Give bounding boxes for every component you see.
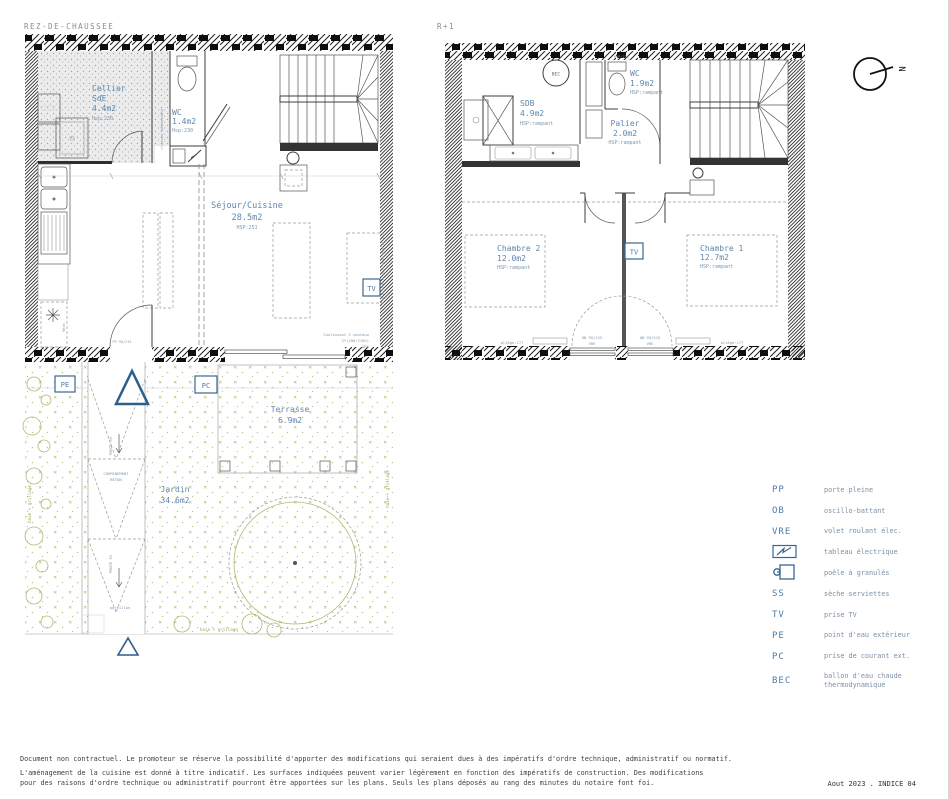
sliding-door-label2: 2*(100/215h) [342, 338, 369, 343]
r1-wc: HSP:220 WC 1.9m2 HSP:rampant [605, 55, 663, 164]
sdb-label: SDB [520, 99, 535, 108]
gate-arrow [118, 638, 138, 655]
sdb-area: 4.9m2 [520, 109, 544, 118]
legend-abbr: OB [772, 506, 824, 516]
chambre2-label: Chambre 2 [497, 244, 541, 253]
pe-marker: PE [55, 376, 75, 392]
window-right-vre: VRE [647, 341, 655, 346]
legend: PP porte pleine OB oscillo-battant VRE v… [772, 480, 942, 695]
tv-outlet-box-r1: TV [625, 243, 643, 259]
jardin-label: Jardin [161, 485, 190, 494]
cellier-label: Cellier [92, 84, 126, 93]
ground-floor-title: REZ-DE-CHAUSSEE [24, 22, 114, 31]
legend-row-tableau: tableau électrique [772, 542, 942, 563]
haie-left-label: haie + grillage [27, 485, 32, 523]
palier-label: Palier [611, 119, 640, 128]
legend-desc: prise de courant ext. [824, 652, 910, 661]
legend-abbr: BEC [772, 676, 824, 686]
r1-wc-label: WC [630, 69, 640, 78]
pc-marker: PC [195, 376, 217, 393]
svg-text:PC: PC [202, 382, 210, 390]
legend-desc: prise TV [824, 611, 857, 620]
rdc-cellier: Cellier SdE 4.4m2 Hsp:230 [38, 51, 155, 164]
legend-row-bec: BEC ballon d'eau chaude thermodynamique [772, 667, 942, 695]
bec-water-heater: BEC [543, 60, 569, 86]
wc-area: 1.4m2 [172, 117, 196, 126]
window-right-label: OB 95/215 [640, 335, 661, 340]
portillon-label: portillon [110, 605, 131, 610]
legend-desc: ballon d'eau chaude thermodynamique [824, 672, 902, 690]
shower [483, 96, 513, 145]
haie-right-label: haie + grillage [385, 470, 390, 508]
r1-wc-area: 1.9m2 [630, 79, 654, 88]
allege-right-label: allège:177 [721, 340, 744, 345]
cheminement-label1: CHEMINEMENT [103, 471, 129, 476]
legend-row-pe: PE point d'eau extérieur [772, 626, 942, 647]
floorplan-sheet: REZ-DE-CHAUSSEE R+1 [0, 0, 949, 800]
wc-label: WC [172, 108, 182, 117]
north-compass: N [843, 48, 913, 108]
electrical-panel-icon [170, 146, 206, 166]
duct-1 [586, 62, 602, 106]
legend-desc: volet roulant élec. [824, 527, 902, 536]
rdc-stairs [280, 55, 378, 191]
terrasse-area: 6.9m2 [278, 416, 302, 425]
r1-wc-hsp: HSP:rampant [630, 90, 663, 96]
cloison-demontable-label: cloison démontable [159, 108, 164, 150]
north-label: N [896, 66, 906, 71]
washbasin [490, 145, 578, 161]
electrical-panel-icon [772, 544, 824, 562]
svg-text:BEC: BEC [552, 72, 560, 78]
legend-abbr: SS [772, 589, 824, 599]
legend-desc: porte pleine [824, 486, 873, 495]
legend-row-poele: poêle à granulés [772, 563, 942, 584]
svg-text:TV: TV [367, 285, 376, 293]
legend-abbr: TV [772, 610, 824, 620]
cheminement-label2: BETON [110, 477, 122, 482]
pellet-stove-icon [772, 563, 824, 584]
sdb-hsp: HSP:rampant [520, 121, 553, 127]
sejour-label: Séjour/Cuisine [211, 200, 283, 211]
rdc-kitchen: 90cm [38, 164, 70, 347]
legend-abbr: VRE [772, 527, 824, 537]
legend-desc: sèche serviettes [824, 590, 889, 599]
rdc-garden: CHEMINEMENT BETON PENTE 5% PENTE 5% port… [23, 362, 393, 655]
sejour-hsp: HSP:251 [236, 225, 257, 231]
date-indice-stamp: Aout 2023 . INDICE 04 [827, 780, 916, 788]
hood-symbol [46, 308, 60, 322]
r1-palier: Palier 2.0m2 HSP:rampant [608, 119, 641, 146]
legend-row-vre: VRE volet roulant élec. [772, 522, 942, 543]
first-floor-title: R+1 [437, 22, 455, 31]
legend-row-ss: SS sèche serviettes [772, 584, 942, 605]
svg-text:TV: TV [630, 249, 639, 257]
tv-outlet-box: TV [363, 279, 380, 296]
wc-hsp: Hsp:230 [172, 128, 193, 134]
rdc-openings: PP 90/215 Coulissant 2 vantaux 2*(100/21… [110, 305, 370, 359]
entry-door-label: PP 90/215 [113, 340, 132, 344]
allege-left-label: allège:177 [501, 340, 524, 345]
legend-abbr: PE [772, 631, 824, 641]
window-left-vre: VRE [589, 341, 597, 346]
palier-area: 2.0m2 [613, 129, 637, 138]
chambre1-area: 12.7m2 [700, 253, 729, 262]
chambre1-label: Chambre 1 [700, 244, 744, 253]
disclaimer-line1: Document non contractuel. Le promoteur s… [20, 755, 900, 763]
legend-abbr: PP [772, 485, 824, 495]
legend-abbr: PC [772, 652, 824, 662]
sliding-door-label1: Coulissant 2 vantaux [323, 332, 369, 337]
rdc-wc: cloison démontable WC 1.4m2 Hsp:230 [152, 51, 230, 166]
r1-sdb: SDB 4.9m2 HSP:rampant [462, 60, 580, 167]
cellier-area: 4.4m2 [92, 104, 116, 113]
haie-bottom-label: haie + grillage [200, 627, 238, 632]
driveway: CHEMINEMENT BETON PENTE 5% PENTE 5% port… [82, 362, 148, 634]
duct-2 [586, 110, 602, 138]
svg-text:PE: PE [61, 381, 69, 389]
cellier-hsp: Hsp:230 [92, 116, 113, 122]
sliding-door-label3: VRE [362, 344, 370, 349]
sejour-area: 28.5m2 [232, 213, 263, 223]
pente-label-2: PENTE 5% [108, 554, 113, 573]
legend-row-pp: PP porte pleine [772, 480, 942, 501]
legend-desc: tableau électrique [824, 548, 898, 557]
cellier-label2: SdE [92, 94, 107, 103]
legend-row-ob: OB oscillo-battant [772, 501, 942, 522]
rdc-sejour: Séjour/Cuisine 28.5m2 HSP:251 TV [38, 164, 383, 347]
r1-stairs [690, 60, 788, 195]
jardin-area: 34.6m2 [161, 496, 190, 505]
legend-desc: point d'eau extérieur [824, 631, 910, 640]
legend-desc: oscillo-battant [824, 507, 885, 516]
chambre2-area: 12.0m2 [497, 254, 526, 263]
first-floor-plan: SDB 4.9m2 HSP:rampant BEC HSP:220 WC 1.9… [440, 34, 810, 374]
window-left-label: OB 95/215 [582, 335, 603, 340]
wc-hsp220: HSP:220 [614, 55, 629, 59]
terrasse-label: Terrasse [271, 405, 310, 414]
legend-row-pc: PC prise de courant ext. [772, 646, 942, 667]
dim-90cm: 90cm [62, 324, 66, 332]
ground-floor-plan: Cellier SdE 4.4m2 Hsp:230 cloison démont… [22, 34, 400, 674]
r1-chambres: Chambre 2 12.0m2 HSP:rampant Chambre 1 1… [462, 193, 788, 346]
chambre1-hsp: HSP:rampant [700, 264, 733, 270]
legend-desc: poêle à granulés [824, 569, 889, 578]
legend-row-tv: TV prise TV [772, 605, 942, 626]
disclaimer-line2: L'aménagement de la cuisine est donné à … [20, 769, 720, 789]
pellet-stove-icon [280, 152, 307, 191]
palier-hsp: HSP:rampant [608, 140, 641, 146]
pente-label-1: PENTE 5% [108, 436, 113, 455]
chambre2-hsp: HSP:rampant [497, 265, 530, 271]
